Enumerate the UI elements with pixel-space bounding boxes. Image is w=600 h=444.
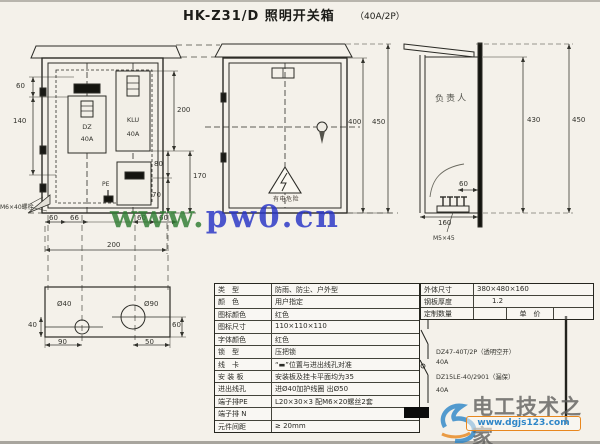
front-view-lines [205,44,360,213]
dim-450-front: 450 [372,118,385,126]
mounting-bolt-note: M6×40螺栓 [0,202,34,211]
spec-value: 进Ø40加护线圈 出Ø50 [272,383,419,394]
spec-value: ≥ 20mm [272,421,419,432]
spec-row-spacing: 元件间距≥ 20mm [215,421,419,432]
info-row-size: 外体尺寸380×480×160 [421,284,593,296]
dim-80: 80 [154,160,163,168]
watermark-pw0-domain: pw0.cn [206,199,340,235]
breaker2-rating-label: 40A [116,130,150,138]
spec-label: 元件间距 [215,421,272,432]
watermark-pw0-prefix: www. [110,199,206,235]
spec-label: 端子排 N [215,408,272,419]
breaker1-rating-label: 40A [68,135,106,143]
circuit-breaker1-model: DZ47-40T/2P（透明空开） [436,347,515,356]
dim-bottom-1: 60 [49,214,58,222]
info-value: 380×480×160 [474,284,593,295]
spec-label: 图标尺寸 [215,321,272,332]
spec-label: 字体颜色 [215,334,272,345]
spec-row-lock: 锁 型压把锁 [215,346,419,358]
info-value: 1.2 [474,296,593,307]
spec-label: 颜 色 [215,296,272,307]
info-row-quantity: 定制数量 单 价 [421,308,593,319]
dim-bottom-2: 66 [70,214,79,222]
front-view-dimensions [346,44,392,213]
spec-row-wire-holes: 进出线孔进Ø40加护线圈 出Ø50 [215,383,419,395]
spec-label: 图标颜色 [215,309,272,320]
spec-value: 110×110×110 [272,321,419,332]
side-bolt-note: M5×45 [433,235,455,242]
info-label: 外体尺寸 [421,284,474,295]
spec-table: 类 型防雨、防尘、户外型 颜 色用户指定 图标颜色红色 图标尺寸110×110×… [214,283,420,433]
spec-value: L20×30×3 配M6×20螺丝2套 [272,396,419,407]
dim-60-left: 60 [16,82,25,90]
circuit-breaker2-model: DZ15LE-40/2901（漏保） [436,372,514,381]
page-title-rating: （40A/2P） [355,9,405,22]
info-label: 定制数量 [421,308,474,319]
info-label: 钢板厚度 [421,296,474,307]
spec-value: 防雨、防尘、户外型 [272,284,419,295]
spec-label: 进出线孔 [215,383,272,394]
breaker1-name-label: DZ [68,123,106,131]
plan-view-lines [45,287,170,337]
spec-row-icon-color: 图标颜色红色 [215,309,419,321]
dim-40-plan: 40 [28,321,37,329]
spec-row-font-color: 字体颜色红色 [215,334,419,346]
spec-row-clip: 线 卡“▬”位置与进出线孔对准 [215,359,419,371]
spec-value: 红色 [272,309,419,320]
side-view-lines [404,43,482,227]
dim-170: 170 [193,172,206,180]
hole-small-label: Ø40 [57,300,71,308]
spec-value [272,408,419,419]
dim-60-side: 60 [459,180,468,188]
watermark-dgjs-url: www.dgjs123.com [466,416,581,431]
spec-row-type: 类 型防雨、防尘、户外型 [215,284,419,296]
dim-200-total: 200 [107,241,120,249]
dim-200-right: 200 [177,106,190,114]
spec-value: 压把锁 [272,346,419,357]
spec-row-n-bar: 端子排 N [215,408,419,420]
page-top-edge [0,0,600,2]
spec-value: 用户指定 [272,296,419,307]
spec-label: 端子排PE [215,396,272,407]
page-title: HK-Z31/D 照明开关箱 [183,5,335,24]
spec-value: “▬”位置与进出线孔对准 [272,359,419,370]
spec-row-icon-size: 图标尺寸110×110×110 [215,321,419,333]
n-bar-filled-cell [404,407,429,418]
dim-140: 140 [13,117,26,125]
info-row-thickness: 钢板厚度1.2 [421,296,593,308]
spec-row-mount-plate: 安 装 板安装板及挂卡平面均为35 [215,371,419,383]
dim-430: 430 [527,116,540,124]
dim-60-plan: 60 [172,321,181,329]
spec-label: 锁 型 [215,346,272,357]
unit-price-cell [554,308,593,319]
blueprint-canvas: HK-Z31/D 照明开关箱 （40A/2P） DZ 40A KLU 40A P… [0,0,600,444]
owner-handwritten-label: 负责人 [435,90,468,104]
spec-row-pe-bar: 端子排PEL20×30×3 配M6×20螺丝2套 [215,396,419,408]
info-table: 外体尺寸380×480×160 钢板厚度1.2 定制数量 单 价 [420,283,594,320]
circuit-breaker1-rating: 40A [436,359,448,366]
dim-450-side: 450 [572,116,585,124]
hole-large-label: Ø90 [144,300,158,308]
dim-400: 400 [348,118,361,126]
dim-90-plan: 90 [58,338,67,346]
circuit-breaker2-rating: 40A [436,387,448,394]
dim-160: 160 [438,219,451,227]
watermark-pw0: www.pw0.cn [110,199,340,235]
pe-terminal-label: PE [102,181,109,188]
spec-label: 安 装 板 [215,371,272,382]
dim-50-plan: 50 [145,338,154,346]
breaker2-name-label: KLU [116,116,150,124]
spec-value: 安装板及挂卡平面均为35 [272,371,419,382]
spec-label: 类 型 [215,284,272,295]
spec-value: 红色 [272,334,419,345]
quantity-cell [474,308,507,319]
spec-label: 线 卡 [215,359,272,370]
unit-price-label: 单 价 [507,308,554,319]
dim-70: 70 [152,191,161,199]
spec-row-color: 颜 色用户指定 [215,296,419,308]
